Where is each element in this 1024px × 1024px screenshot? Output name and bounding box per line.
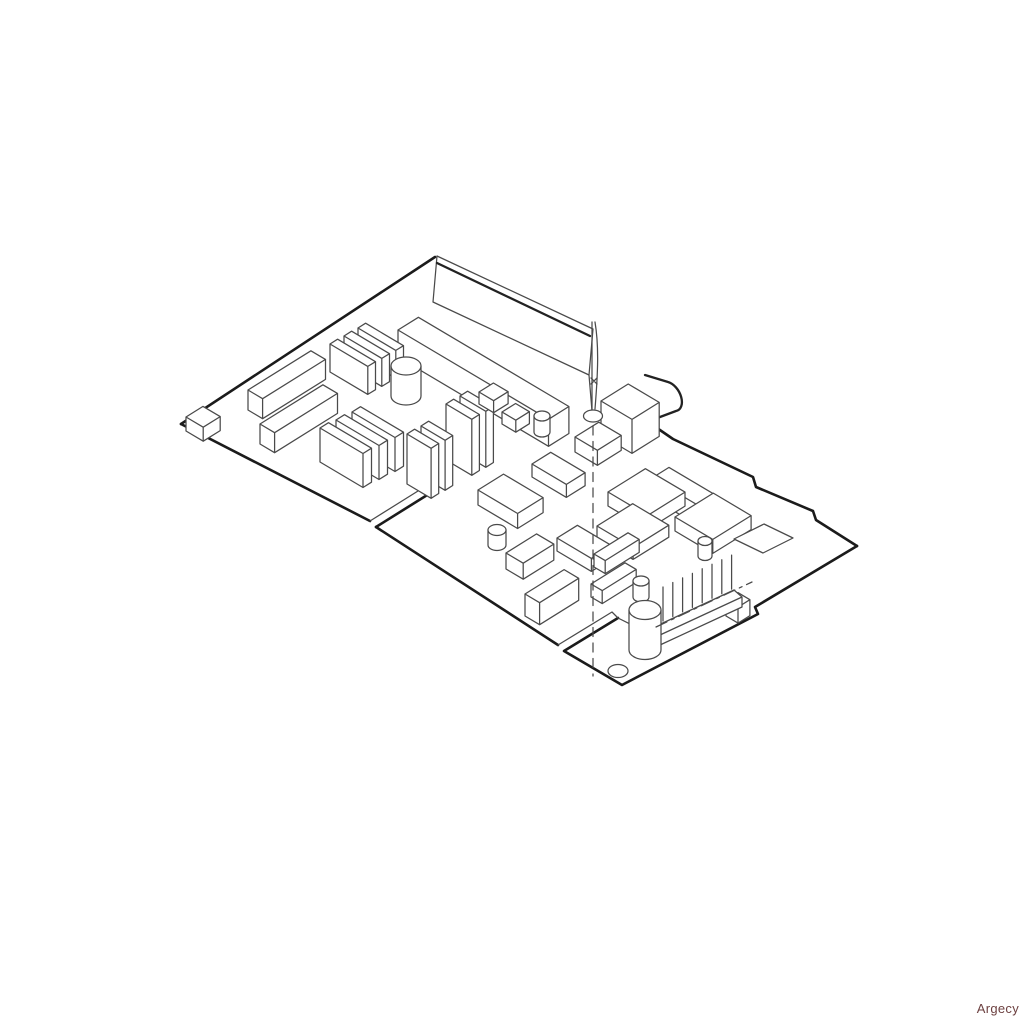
ic-chip-b [532,452,585,497]
standoff-hole [584,410,603,422]
screenshot-canvas: Argecy [0,0,1024,1024]
capacitor-2-top [534,411,550,421]
capacitor-big-top [629,601,661,620]
watermark-text: Argecy [977,1001,1019,1016]
slot2-inner-edge [558,612,618,645]
capacitor-4-top [488,525,506,536]
corner-chip [186,406,220,441]
capacitor-5-top [633,576,649,586]
controller-board-diagram [0,0,1024,1024]
ic-box-f [506,534,554,579]
slot1-outer-edge [376,492,432,527]
capacitor-3-top [698,537,712,546]
ic-box-m [525,570,579,625]
ic-chip-c [478,474,543,528]
screw-shaft-right [595,322,598,409]
capacitor-1-top [391,357,421,375]
mounting-hole [608,665,628,678]
